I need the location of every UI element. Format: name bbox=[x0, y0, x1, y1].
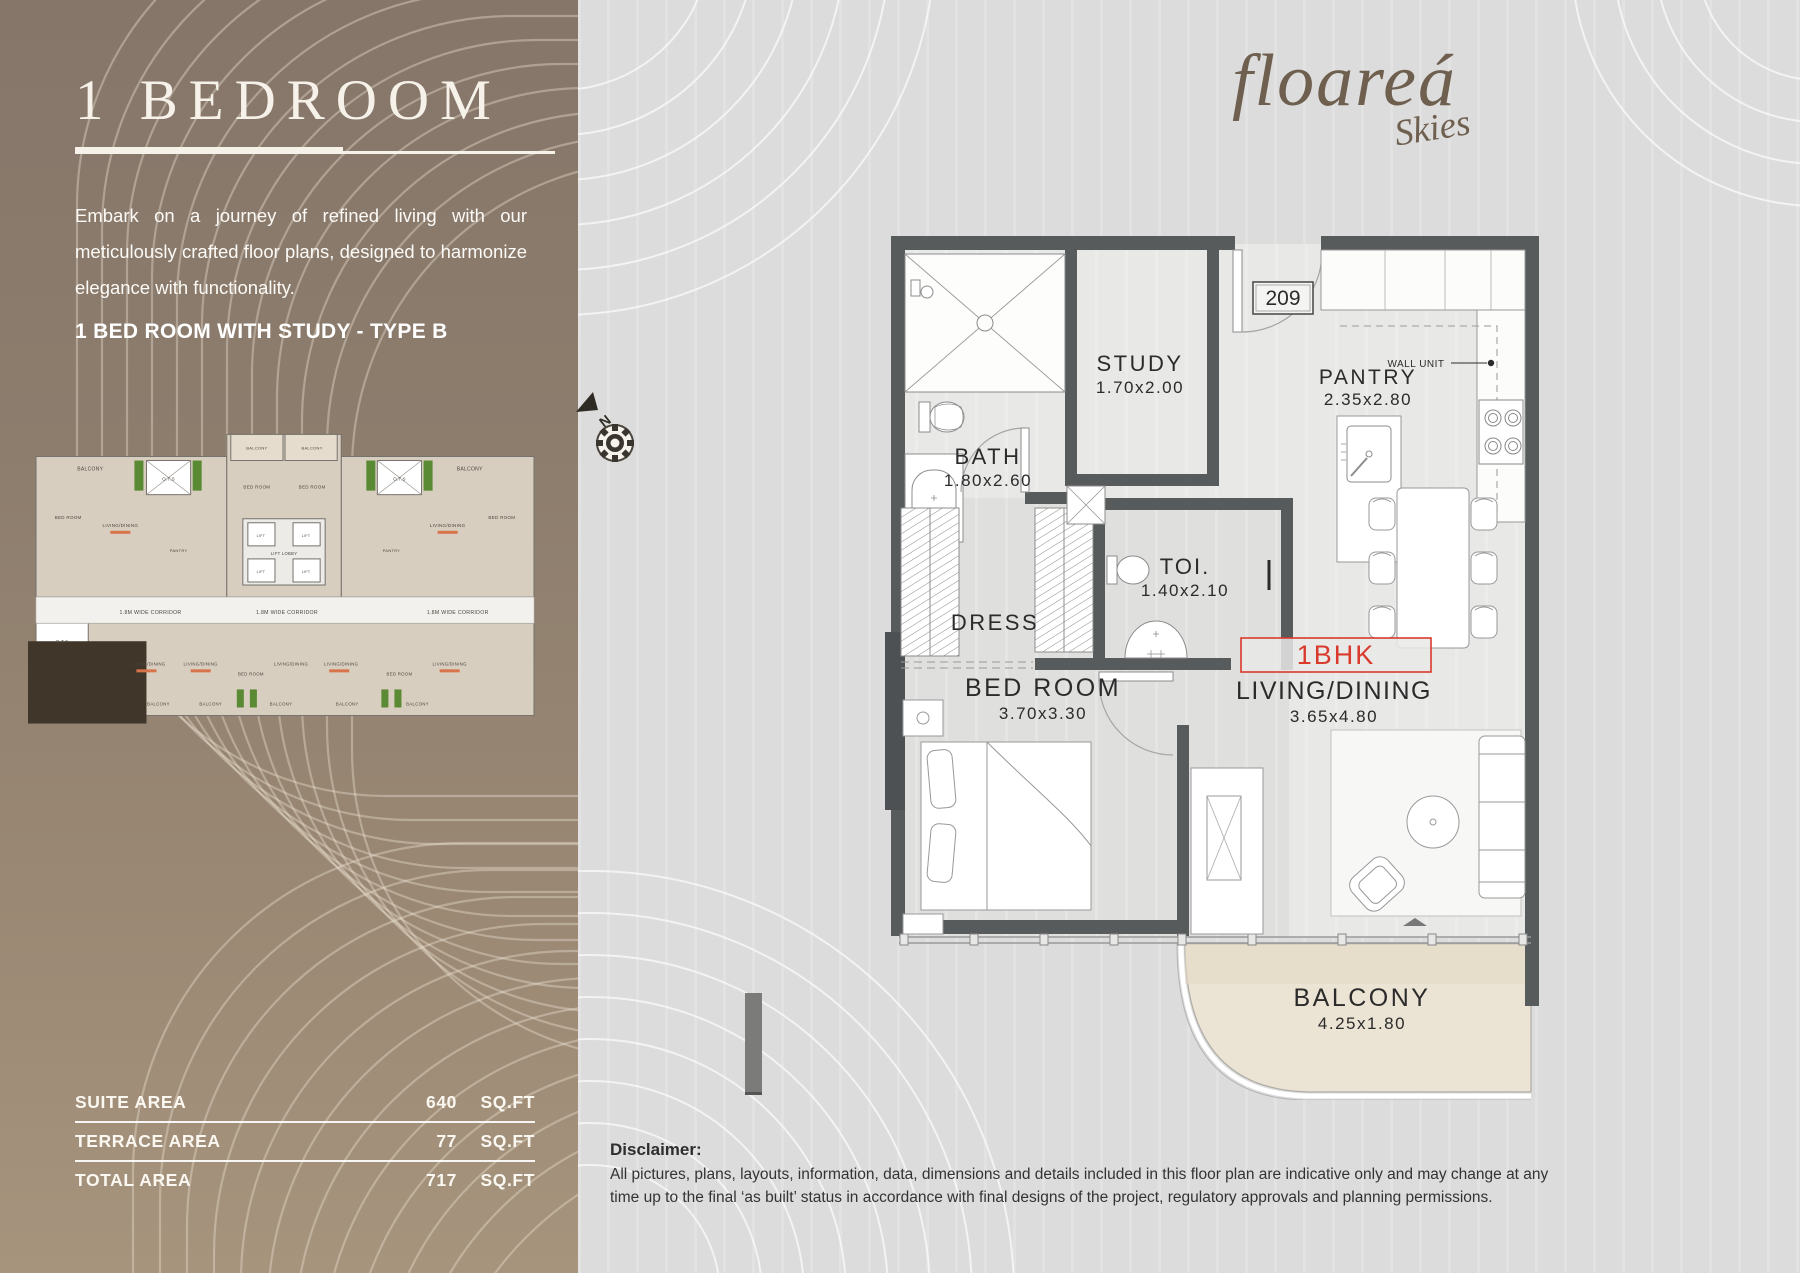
area-label: TOTAL AREA bbox=[75, 1170, 387, 1191]
brand-logo: floareá Skies bbox=[1232, 44, 1532, 145]
keyplan-label: O.T.S bbox=[162, 477, 175, 482]
title-underline-thin bbox=[343, 151, 555, 154]
keyplan-label: PANTRY bbox=[383, 548, 401, 553]
keyplan-label: BED ROOM bbox=[55, 515, 82, 520]
area-unit: SQ.FT bbox=[457, 1131, 535, 1152]
keyplan-label: BALCONY bbox=[147, 701, 170, 706]
table-row: TOTAL AREA 717 SQ.FT bbox=[75, 1162, 535, 1199]
unit-number: 209 bbox=[1265, 287, 1300, 310]
keyplan-label: LIVING/DINING bbox=[433, 661, 468, 666]
sofa-icon bbox=[1479, 736, 1525, 898]
coffee-table-icon bbox=[1407, 796, 1459, 848]
keyplan-label: BED ROOM bbox=[488, 515, 515, 520]
area-unit: SQ.FT bbox=[457, 1092, 535, 1113]
area-label: SUITE AREA bbox=[75, 1092, 387, 1113]
disclaimer-line: time up to the final ‘as built’ status i… bbox=[610, 1186, 1710, 1209]
stove-icon bbox=[1479, 400, 1523, 464]
area-table: SUITE AREA 640 SQ.FT TERRACE AREA 77 SQ.… bbox=[75, 1084, 535, 1199]
neighbour-wall-stub bbox=[745, 993, 762, 1095]
keyplan-label: PANTRY bbox=[170, 548, 188, 553]
keyplan-label: O.T.S bbox=[393, 477, 406, 482]
keyplan-label: LIVING/DINING bbox=[274, 661, 309, 666]
room-label-dress: DRESS bbox=[951, 610, 1039, 635]
keyplan-label: BALCONY bbox=[246, 445, 267, 450]
keyplan-label: BALCONY bbox=[270, 701, 293, 706]
room-dims-toi: 1.40x2.10 bbox=[1141, 581, 1229, 600]
keyplan-label: BED ROOM bbox=[243, 485, 270, 490]
keyplan-label: BALCONY bbox=[336, 701, 359, 706]
keyplan-label: BED ROOM bbox=[387, 671, 413, 676]
keyplan-label: LIFT bbox=[302, 570, 311, 574]
area-unit: SQ.FT bbox=[457, 1170, 535, 1191]
room-dims-study: 1.70x2.00 bbox=[1096, 378, 1184, 397]
keyplan-label: 1.8M WIDE CORRIDOR bbox=[119, 610, 181, 616]
keyplan-label: 1.8M WIDE CORRIDOR bbox=[256, 610, 318, 616]
room-dims-living: 3.65x4.80 bbox=[1290, 707, 1378, 726]
disclaimer-line: All pictures, plans, layouts, informatio… bbox=[610, 1163, 1710, 1186]
disclaimer: Disclaimer: All pictures, plans, layouts… bbox=[610, 1140, 1710, 1210]
unit-type-heading: 1 BED ROOM WITH STUDY - TYPE B bbox=[75, 320, 555, 344]
area-value: 717 bbox=[387, 1170, 457, 1191]
keyplan-label: LIVING/DINING bbox=[131, 661, 166, 666]
keyplan-label: LIFT bbox=[257, 570, 266, 574]
unit-type-label: 1BHK bbox=[1297, 640, 1376, 670]
title-underline-thick bbox=[75, 147, 343, 154]
dining-set bbox=[1369, 488, 1497, 648]
keyplan-label: LIVING/DINING bbox=[430, 523, 466, 528]
area-value: 77 bbox=[387, 1131, 457, 1152]
room-label-living: LIVING/DINING bbox=[1236, 677, 1432, 705]
keyplan-label: BALCONY bbox=[457, 467, 483, 473]
shaft bbox=[1067, 486, 1105, 524]
keyplan-label: BED ROOM bbox=[299, 485, 326, 490]
shower bbox=[905, 254, 1065, 392]
room-label-balcony: BALCONY bbox=[1294, 984, 1431, 1012]
area-label: TERRACE AREA bbox=[75, 1131, 387, 1152]
compass-icon: N bbox=[568, 384, 648, 472]
keyplan-label: O.T.S bbox=[56, 639, 69, 644]
keyplan-label: BALCONY bbox=[406, 701, 429, 706]
page-title: 1 BEDROOM bbox=[75, 68, 555, 133]
disclaimer-heading: Disclaimer: bbox=[610, 1140, 1710, 1160]
intro-paragraph: Embark on a journey of refined living wi… bbox=[75, 198, 527, 306]
toilet-icon bbox=[919, 402, 964, 432]
room-label-bath: BATH bbox=[954, 444, 1021, 469]
room-dims-balcony: 4.25x1.80 bbox=[1318, 1014, 1406, 1033]
keyplan-label: LIFT LOBBY bbox=[271, 551, 298, 556]
table-row: TERRACE AREA 77 SQ.FT bbox=[75, 1123, 535, 1160]
keyplan-label: BALCONY bbox=[301, 445, 322, 450]
wall-unit-label: WALL UNIT bbox=[1387, 359, 1444, 370]
floor-plan: 209 bbox=[885, 230, 1545, 1100]
unit-number-plate: 209 bbox=[1253, 282, 1313, 314]
area-value: 640 bbox=[387, 1092, 457, 1113]
table-row: SUITE AREA 640 SQ.FT bbox=[75, 1084, 535, 1121]
unit-type-badge: 1BHK bbox=[1241, 638, 1431, 672]
room-dims-pantry: 2.35x2.80 bbox=[1324, 390, 1412, 409]
keyplan-label: LIVING/DINING bbox=[324, 661, 359, 666]
kitchen-island-sink bbox=[1337, 416, 1401, 562]
room-label-bedroom: BED ROOM bbox=[965, 674, 1121, 702]
room-label-study: STUDY bbox=[1096, 351, 1183, 376]
keyplan-label: LIVING/DINING bbox=[103, 523, 139, 528]
toilet-icon bbox=[1107, 556, 1149, 584]
room-dims-bath: 1.80x2.60 bbox=[944, 471, 1032, 490]
keyplan-label: BALCONY bbox=[199, 701, 222, 706]
room-dims-bedroom: 3.70x3.30 bbox=[999, 704, 1087, 723]
keyplan-label: LIFT bbox=[257, 534, 266, 538]
keyplan-label: LIFT bbox=[302, 534, 311, 538]
keyplan-label: BALCONY bbox=[77, 467, 103, 473]
tv-unit bbox=[1191, 768, 1263, 934]
key-plan: BALCONY BALCONY BALCONY BALCONY O.T.S O.… bbox=[28, 426, 540, 738]
room-label-toi: TOI. bbox=[1160, 554, 1210, 579]
keyplan-label: BED ROOM bbox=[238, 671, 264, 676]
keyplan-label: LIVING/DINING bbox=[184, 661, 219, 666]
keyplan-label: 1.8M WIDE CORRIDOR bbox=[427, 610, 489, 616]
